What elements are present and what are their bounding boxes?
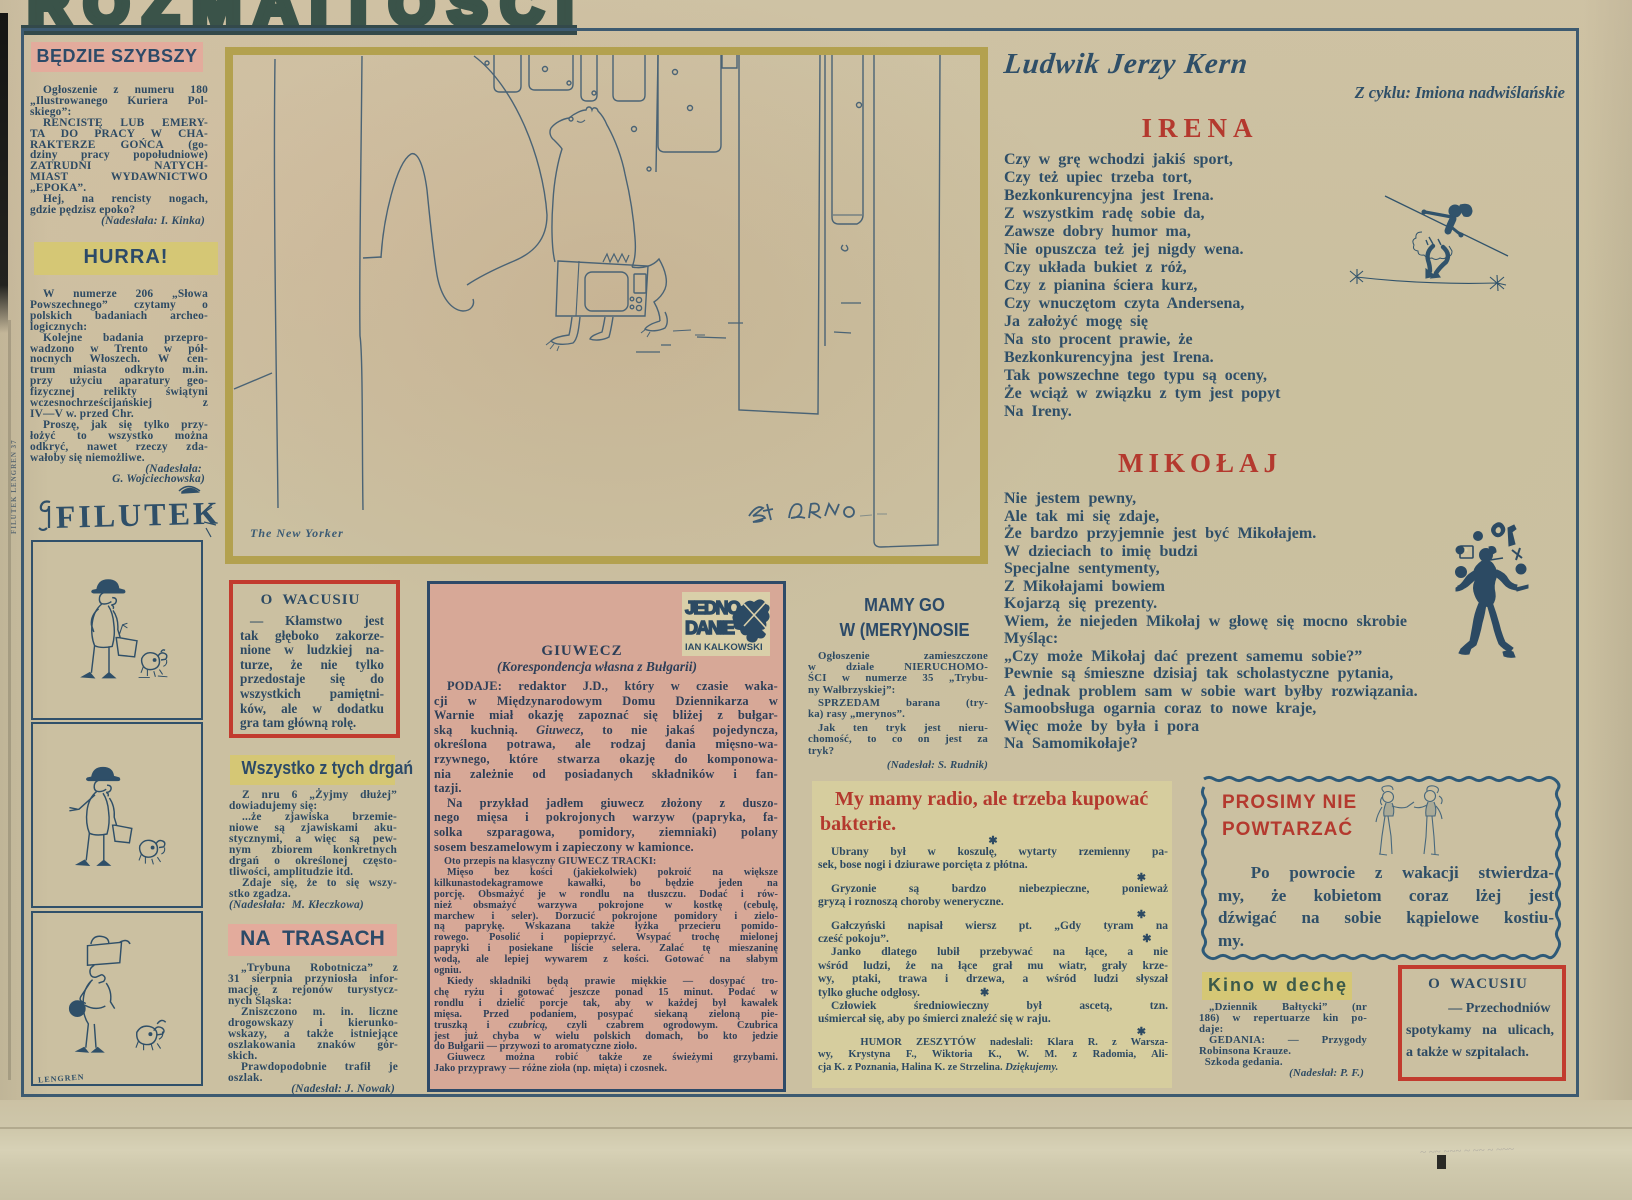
svg-text:JEDNO: JEDNO xyxy=(685,598,741,618)
svg-text:IAN KALKOWSKI: IAN KALKOWSKI xyxy=(685,642,763,653)
svg-text:FILUTEK: FILUTEK xyxy=(55,495,221,535)
svg-text:DANIE: DANIE xyxy=(685,618,735,638)
